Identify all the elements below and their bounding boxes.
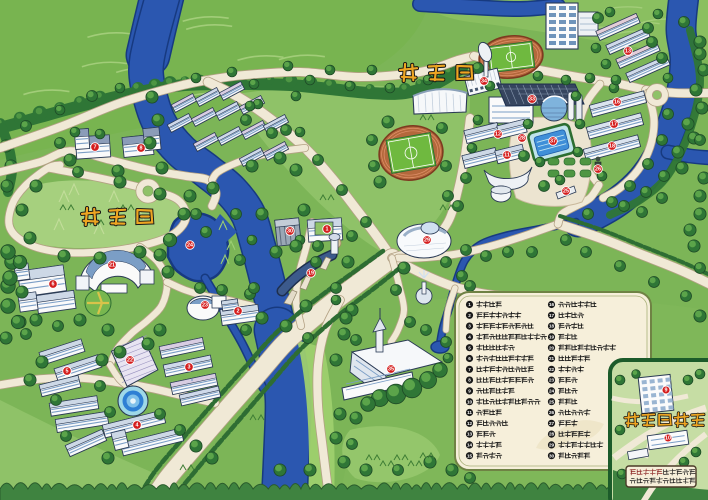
svg-text:25: 25 [549, 399, 555, 404]
svg-text:11: 11 [467, 410, 472, 415]
svg-text:4: 4 [136, 423, 139, 429]
svg-text:8: 8 [140, 146, 143, 152]
svg-text:10: 10 [665, 436, 671, 442]
svg-text:29: 29 [549, 443, 555, 448]
svg-text:8: 8 [468, 378, 471, 383]
svg-text:26: 26 [549, 410, 555, 415]
svg-text:17: 17 [549, 313, 555, 318]
svg-text:30: 30 [287, 229, 293, 235]
svg-text:21: 21 [109, 263, 115, 269]
svg-text:14: 14 [467, 443, 473, 448]
svg-text:28: 28 [549, 432, 555, 437]
svg-text:3: 3 [188, 365, 191, 371]
svg-text:34: 34 [481, 79, 487, 85]
svg-text:2: 2 [237, 309, 240, 315]
svg-text:25: 25 [563, 189, 569, 195]
svg-text:6: 6 [468, 356, 471, 361]
svg-text:22: 22 [549, 367, 555, 372]
svg-text:10: 10 [467, 399, 473, 404]
svg-text:3: 3 [468, 324, 471, 329]
svg-text:22: 22 [127, 358, 133, 364]
svg-text:1: 1 [326, 227, 329, 233]
svg-text:37: 37 [550, 139, 556, 145]
svg-text:24: 24 [549, 389, 555, 394]
svg-text:15: 15 [467, 453, 473, 458]
svg-text:20: 20 [549, 345, 555, 350]
svg-text:11: 11 [504, 153, 510, 159]
svg-text:19: 19 [549, 335, 555, 340]
svg-text:16: 16 [614, 100, 620, 106]
svg-text:9: 9 [468, 389, 471, 394]
svg-text:23: 23 [202, 303, 208, 309]
svg-text:27: 27 [549, 421, 555, 426]
svg-text:5: 5 [66, 369, 69, 375]
svg-text:33: 33 [529, 97, 535, 103]
svg-text:13: 13 [467, 432, 473, 437]
svg-text:17: 17 [611, 122, 617, 128]
svg-text:4: 4 [468, 335, 471, 340]
svg-text:24: 24 [187, 243, 193, 249]
svg-text:23: 23 [549, 378, 555, 383]
svg-text:1: 1 [468, 302, 471, 307]
svg-text:12: 12 [467, 421, 473, 426]
svg-text:6: 6 [52, 282, 55, 288]
svg-text:12: 12 [495, 132, 501, 138]
svg-text:7: 7 [94, 145, 97, 151]
svg-text:5: 5 [468, 345, 471, 350]
svg-text:21: 21 [549, 356, 555, 361]
svg-text:2: 2 [468, 313, 471, 318]
svg-text:16: 16 [549, 302, 555, 307]
svg-text:35: 35 [388, 367, 394, 373]
svg-text:30: 30 [549, 453, 555, 458]
svg-text:26: 26 [595, 167, 601, 173]
svg-text:19: 19 [308, 271, 314, 277]
svg-text:18: 18 [549, 324, 555, 329]
svg-text:13: 13 [625, 49, 631, 55]
svg-text:9: 9 [665, 388, 668, 394]
svg-text:18: 18 [609, 144, 615, 150]
svg-text:29: 29 [424, 238, 430, 244]
svg-text:7: 7 [468, 367, 471, 372]
svg-text:28: 28 [519, 136, 525, 142]
